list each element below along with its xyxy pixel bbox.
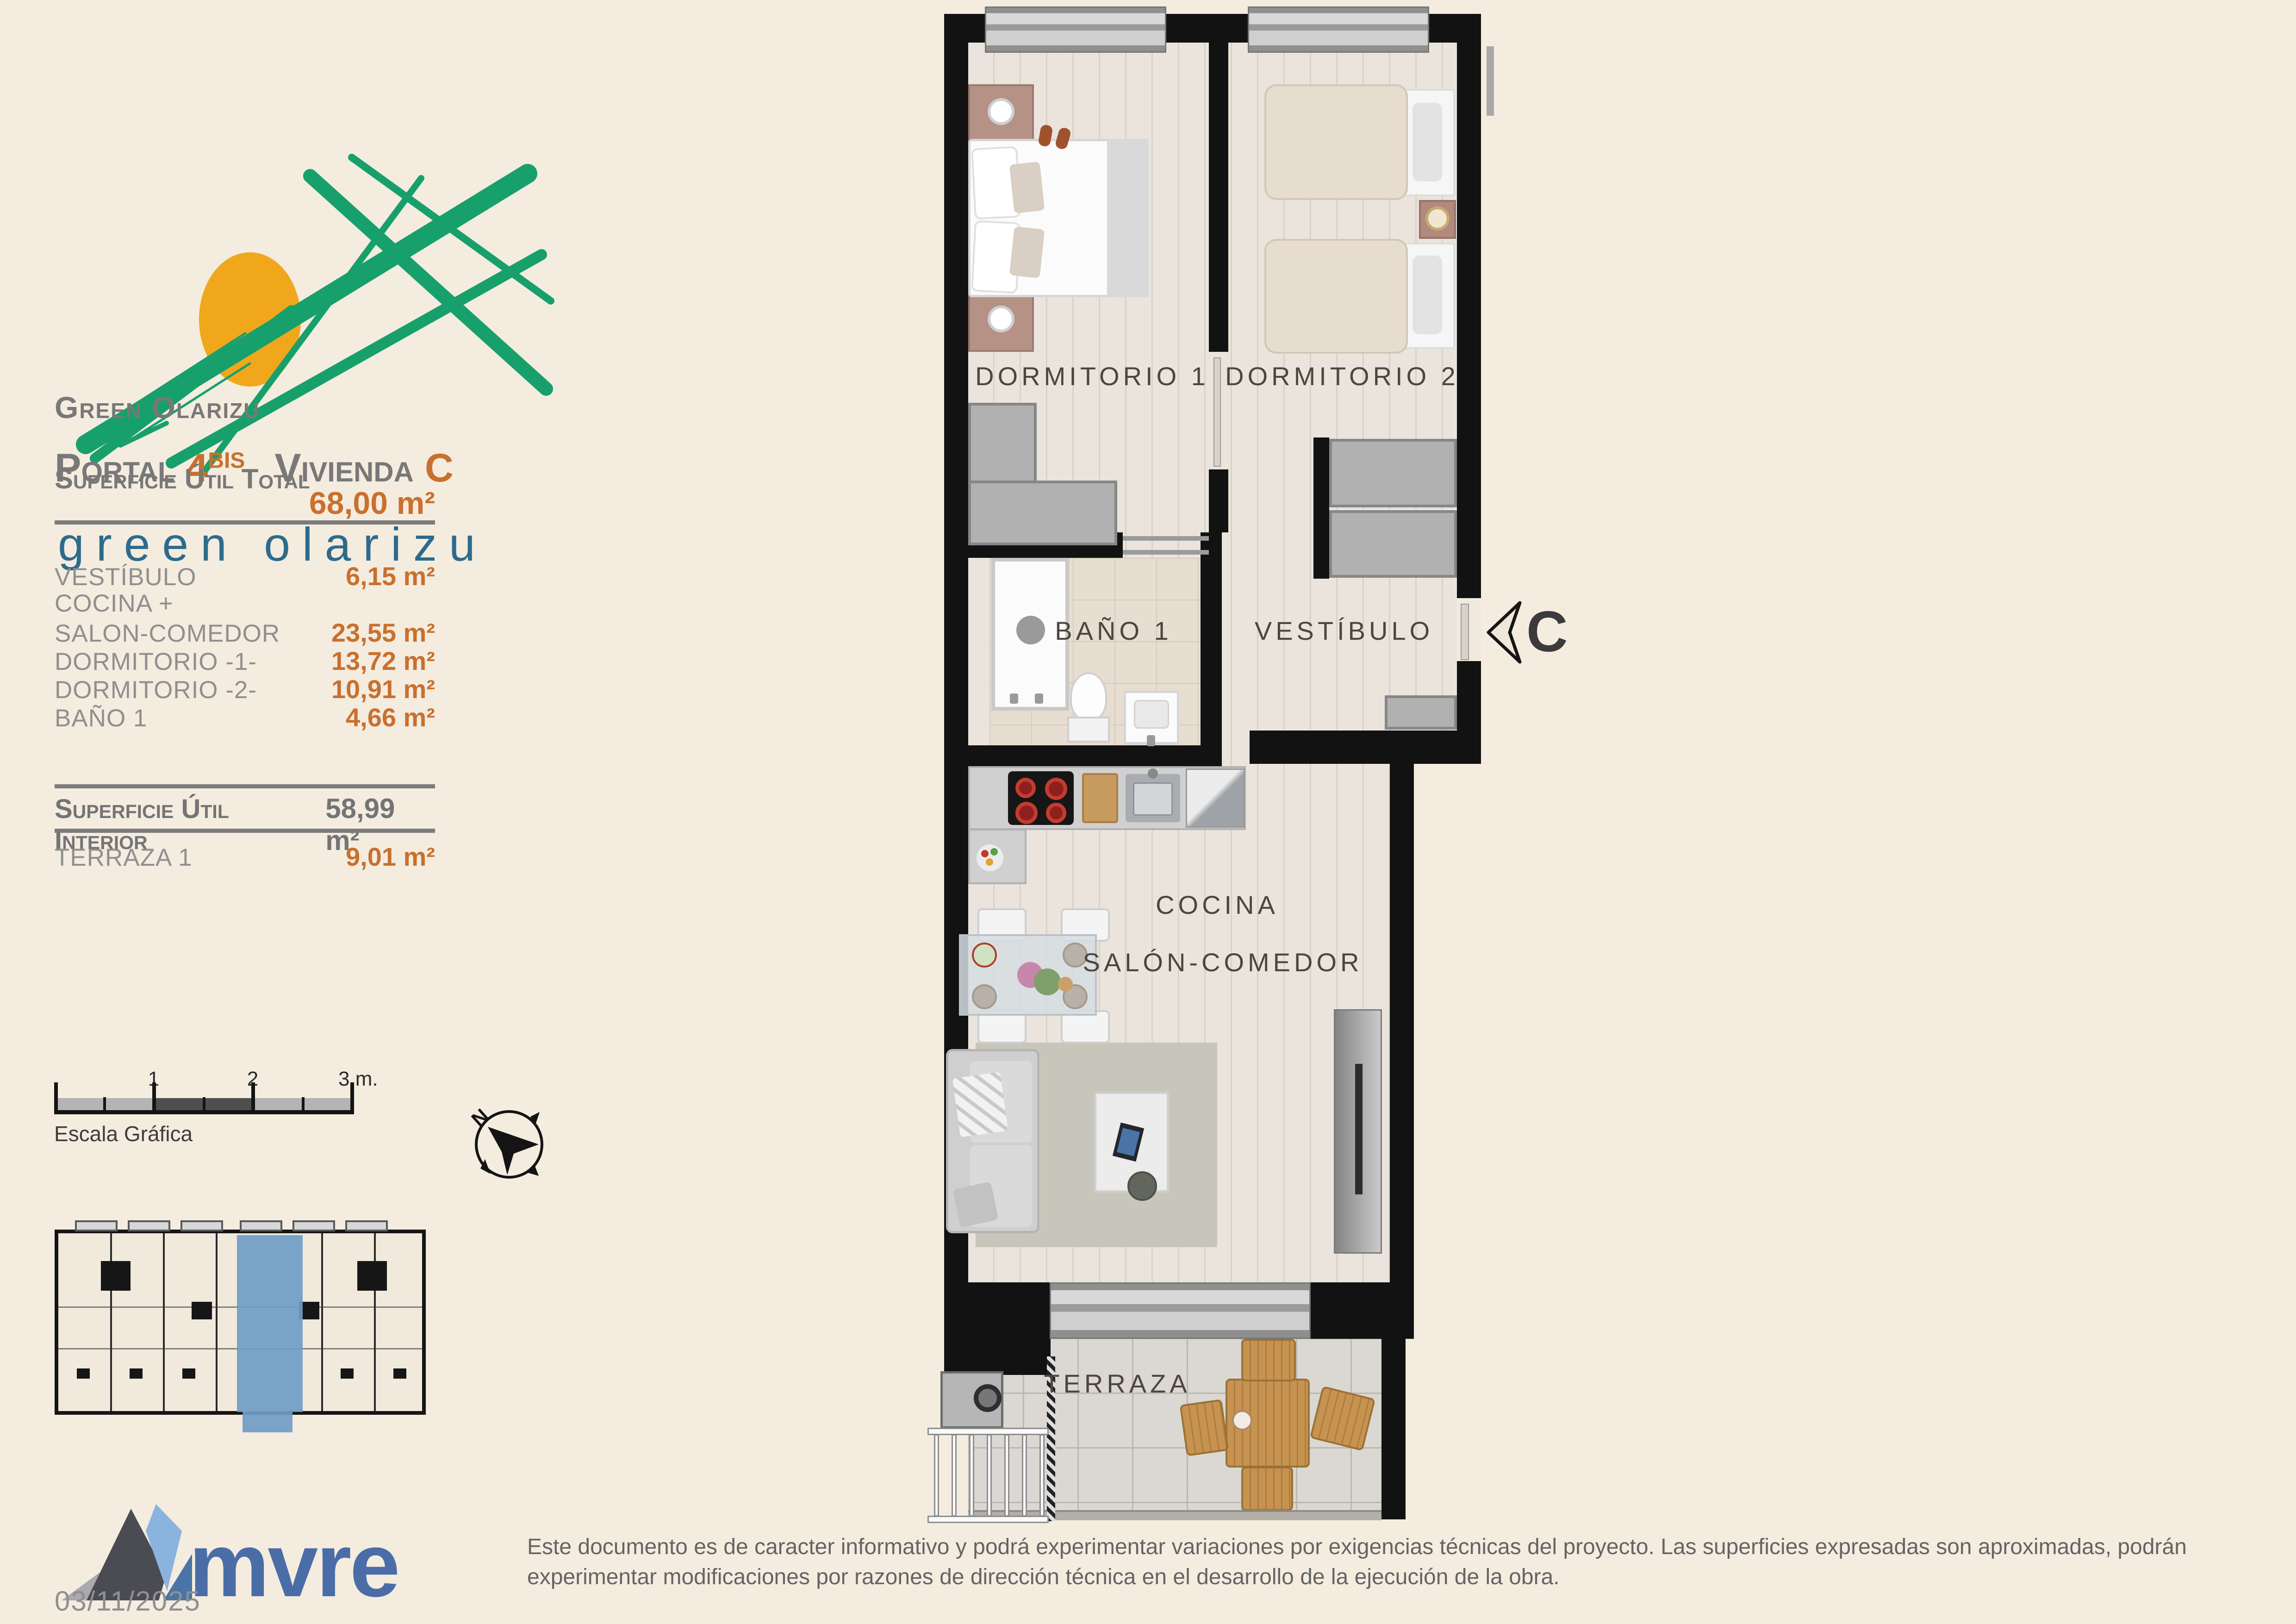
flowers-icon <box>1034 968 1061 995</box>
railing-baluster <box>952 1434 957 1517</box>
fruit-bowl-icon <box>975 843 1005 873</box>
wall-terrace-right <box>1381 1338 1406 1519</box>
shower-drain-icon <box>1016 616 1045 644</box>
wall-bedroom-divider-lower <box>1209 469 1228 532</box>
key-plan-balcony <box>128 1220 170 1231</box>
dessert-icon <box>1058 977 1073 992</box>
wall-living-bottom-right <box>1310 1282 1414 1339</box>
key-plan-balcony <box>75 1220 118 1231</box>
key-plan-tooth <box>182 1368 195 1379</box>
vivienda-letter: C <box>425 446 454 490</box>
key-plan-line <box>216 1233 218 1411</box>
wardrobe-vestibule <box>1329 510 1457 578</box>
key-plan-core <box>192 1302 212 1319</box>
bed-pillow <box>1412 256 1442 334</box>
terrace-chair <box>1241 1339 1296 1381</box>
wardrobe-dorm1 <box>968 481 1117 545</box>
decor-bowl-icon <box>1127 1171 1157 1201</box>
kitchen-tap-icon <box>1148 768 1158 779</box>
cutting-board-icon <box>1082 773 1118 823</box>
scale-number-3: 3 m. <box>338 1068 378 1091</box>
mvre-wordmark: mvre <box>189 1513 398 1617</box>
bed-pillow <box>1412 103 1442 181</box>
table-row: VESTÍBULO6,15 m² <box>55 561 435 589</box>
place-setting <box>972 943 997 968</box>
wall-bath-right <box>1201 532 1222 766</box>
divider-line <box>55 784 435 788</box>
wall-living-sw-corner <box>944 1282 1051 1375</box>
sofa-pillow <box>952 1181 999 1228</box>
key-plan-line <box>110 1233 112 1411</box>
highlighted-unit <box>237 1235 303 1412</box>
key-plan-core <box>101 1261 131 1291</box>
place-setting <box>972 984 997 1009</box>
key-plan-tooth <box>77 1368 90 1379</box>
railing-rail <box>927 1516 1049 1523</box>
railing-baluster <box>969 1434 974 1517</box>
room-label-vestibulo: VESTÍBULO <box>1255 616 1433 646</box>
key-plan-core <box>357 1261 387 1291</box>
key-plan <box>55 1230 426 1415</box>
room-label-salon: SALÓN-COMEDOR <box>1083 947 1363 977</box>
entrance-door-leaf <box>1461 604 1469 660</box>
lamp-icon <box>1425 206 1450 231</box>
scale-tick <box>152 1082 156 1113</box>
scale-tick <box>350 1082 354 1113</box>
scale-caption: Escala Gráfica <box>54 1121 193 1146</box>
lamp-icon <box>988 306 1014 332</box>
key-plan-balcony <box>180 1220 223 1231</box>
burner-icon <box>1045 778 1067 800</box>
entrance-arrow-icon <box>1484 600 1523 665</box>
bed-blanket <box>1107 139 1149 297</box>
ac-fan-icon <box>974 1384 1002 1412</box>
wall-bedroom-divider <box>1209 43 1228 352</box>
green-olarizu-logo-icon <box>51 93 560 500</box>
window-terrace-slider <box>1050 1282 1311 1339</box>
burner-icon <box>1046 803 1066 823</box>
railing-baluster <box>987 1434 992 1517</box>
key-plan-balcony <box>345 1220 388 1231</box>
room-label-dormitorio2: DORMITORIO 2 <box>1225 361 1459 391</box>
wall-right-upper <box>1457 14 1481 598</box>
terrace-chair <box>1180 1399 1229 1456</box>
table-row: BAÑO 14,66 m² <box>55 702 435 731</box>
terrace-chair <box>1241 1467 1293 1511</box>
key-plan-balcony <box>292 1220 335 1231</box>
wall-vestibule-bottom <box>1250 731 1481 764</box>
lamp-icon <box>988 98 1014 125</box>
disclaimer-text: Este documento es de caracter informativ… <box>527 1532 2272 1593</box>
total-area-value: 68,00 m² <box>55 485 435 521</box>
sliding-door-rail <box>1123 536 1209 541</box>
downpipe <box>1487 46 1494 116</box>
door-leaf-dorm1 <box>1213 357 1221 467</box>
railing-baluster <box>934 1434 939 1517</box>
shower-tap-icon <box>1035 693 1043 704</box>
kitchen-sink-bowl <box>1133 782 1173 816</box>
terrace-plate-icon <box>1232 1410 1252 1430</box>
key-plan-balcony <box>240 1220 282 1231</box>
key-plan-tooth <box>393 1368 406 1379</box>
room-label-dormitorio1: DORMITORIO 1 <box>975 361 1209 391</box>
railing-baluster <box>1039 1434 1045 1517</box>
key-plan-line <box>321 1233 323 1411</box>
throw-blanket <box>952 1072 1008 1137</box>
sliding-door-rail <box>1123 550 1209 555</box>
railing-baluster <box>1022 1434 1027 1517</box>
wall-right-entry <box>1457 661 1481 731</box>
room-area-table: VESTÍBULO6,15 m² COCINA + SALON-COMEDOR2… <box>55 561 435 731</box>
key-plan-line <box>163 1233 165 1411</box>
wardrobe-vestibule <box>1329 439 1457 507</box>
key-plan-tooth <box>130 1368 143 1379</box>
shower-tap-icon <box>1010 693 1018 704</box>
basin-tap-icon <box>1147 735 1155 746</box>
basin-bowl <box>1134 700 1169 729</box>
toilet-tank <box>1067 717 1110 743</box>
bed-duvet <box>1264 239 1408 354</box>
table-row: DORMITORIO -1-13,72 m² <box>55 646 435 674</box>
window-dorm2 <box>1248 6 1429 53</box>
window-dorm1 <box>985 6 1166 53</box>
terrace-area-row: TERRAZA 1 9,01 m² <box>55 842 435 872</box>
tv-icon <box>1355 1064 1363 1194</box>
burner-icon <box>1015 802 1038 824</box>
bed-accent-pillow <box>1009 226 1045 278</box>
room-label-bano: BAÑO 1 <box>1055 616 1172 646</box>
burner-icon <box>1015 778 1036 798</box>
table-row: DORMITORIO -2-10,91 m² <box>55 674 435 702</box>
project-title: Green Olarizu <box>55 390 260 425</box>
toilet-icon <box>1070 672 1107 721</box>
floorplan-sheet: green olarizu Green Olarizu Portal 4BIS … <box>0 0 2296 1624</box>
room-label-terraza: TERRAZA <box>1044 1368 1190 1399</box>
key-plan-line <box>374 1233 376 1411</box>
corner-cabinet <box>1186 768 1245 828</box>
terrace-area-value: 9,01 m² <box>346 842 435 872</box>
bed-accent-pillow <box>1009 162 1045 213</box>
divider-line <box>55 520 435 525</box>
shoe-cabinet <box>1385 695 1457 730</box>
terrace-area-label: TERRAZA 1 <box>55 843 193 872</box>
divider-line <box>55 829 435 833</box>
railing-baluster <box>1004 1434 1009 1517</box>
wall-vestibule-stub <box>1313 437 1329 579</box>
scale-tick <box>54 1082 58 1113</box>
highlighted-unit-terrace <box>243 1411 292 1432</box>
table-row: SALON-COMEDOR23,55 m² <box>55 618 435 646</box>
table-row: COCINA + <box>55 589 435 618</box>
room-label-cocina: COCINA <box>1156 890 1279 920</box>
date-stamp: 03/11/2025 <box>55 1585 201 1617</box>
scale-baseline <box>54 1110 354 1114</box>
key-plan-tooth <box>341 1368 354 1379</box>
wall-right-lower <box>1390 764 1414 1338</box>
fruit-icon <box>986 858 993 866</box>
entrance-marker-letter: C <box>1526 599 1568 665</box>
fruit-icon <box>990 848 998 856</box>
bed-duvet <box>1264 84 1408 200</box>
fruit-icon <box>981 850 989 857</box>
scale-tick <box>251 1082 255 1113</box>
wall-bath-bottom <box>968 745 1222 766</box>
